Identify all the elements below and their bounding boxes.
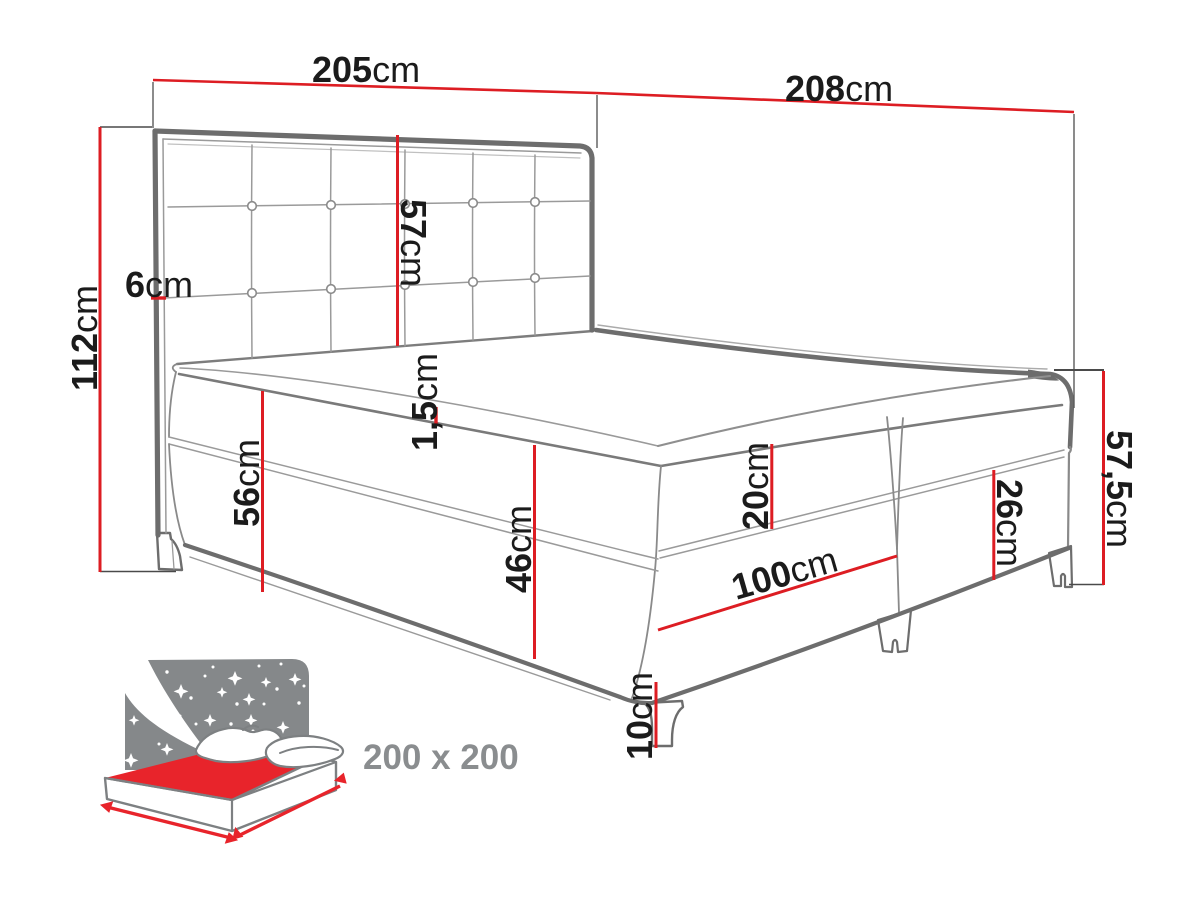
svg-text:6cm: 6cm [125,264,193,305]
svg-text:56cm: 56cm [226,439,267,527]
svg-text:57,5cm: 57,5cm [1099,430,1140,548]
svg-text:208cm: 208cm [785,68,893,109]
svg-text:10cm: 10cm [619,672,660,760]
svg-text:26cm: 26cm [989,479,1030,567]
svg-text:20cm: 20cm [735,442,776,530]
svg-text:57cm: 57cm [393,199,434,287]
svg-text:1,5cm: 1,5cm [404,353,445,451]
svg-text:46cm: 46cm [498,505,539,593]
svg-text:200 x 200: 200 x 200 [363,738,519,777]
svg-text:205cm: 205cm [312,49,420,90]
svg-text:112cm: 112cm [64,285,105,391]
